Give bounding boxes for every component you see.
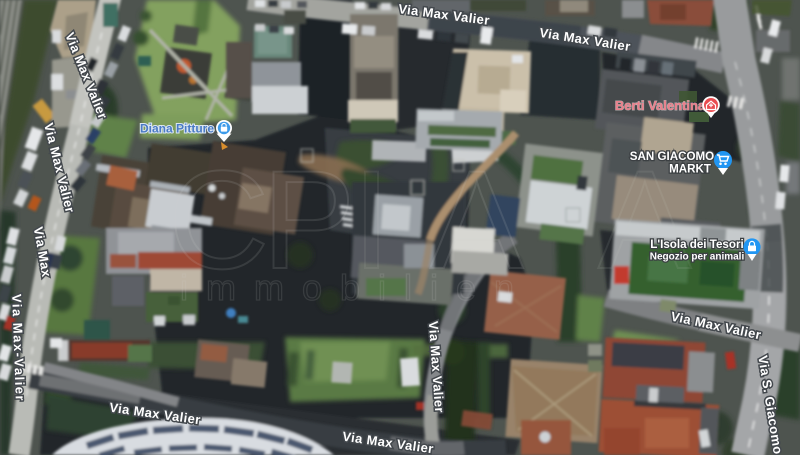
svg-text:immobilien: immobilien	[180, 267, 532, 308]
svg-text:MARKT: MARKT	[669, 163, 711, 176]
svg-text:Berti Valentina: Berti Valentina	[615, 98, 706, 113]
svg-text:SAN GIACOMO: SAN GIACOMO	[630, 150, 714, 163]
svg-text:Negozio per animali: Negozio per animali	[650, 252, 745, 263]
svg-text:Diana Pitture: Diana Pitture	[140, 122, 214, 136]
svg-text:L'Isola dei Tesori: L'Isola dei Tesori	[650, 238, 743, 251]
